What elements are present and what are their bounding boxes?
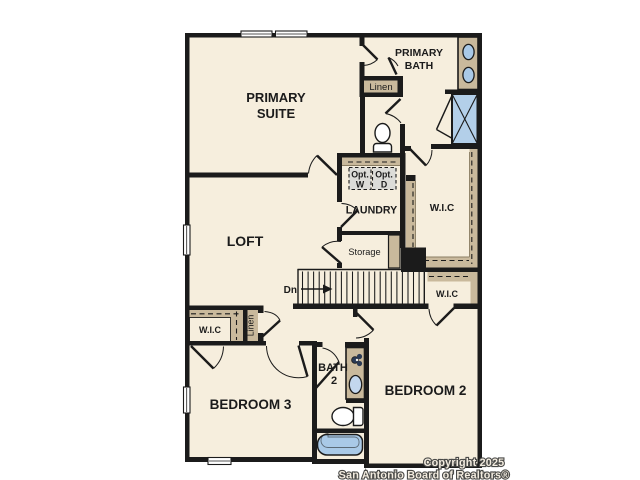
svg-text:2: 2 bbox=[331, 375, 337, 387]
svg-text:Linen: Linen bbox=[369, 82, 392, 93]
svg-text:Opt.: Opt. bbox=[375, 170, 393, 180]
svg-text:W.I.C: W.I.C bbox=[430, 203, 454, 214]
svg-text:LAUNDRY: LAUNDRY bbox=[346, 205, 397, 217]
svg-text:BEDROOM 3: BEDROOM 3 bbox=[210, 397, 292, 412]
svg-text:W.I.C: W.I.C bbox=[436, 289, 458, 299]
svg-text:PRIMARY: PRIMARY bbox=[395, 47, 443, 59]
svg-text:D: D bbox=[381, 180, 387, 190]
svg-text:Linen: Linen bbox=[246, 315, 256, 337]
svg-text:Opt.: Opt. bbox=[351, 170, 369, 180]
svg-text:Dn: Dn bbox=[284, 285, 297, 296]
svg-text:LOFT: LOFT bbox=[227, 233, 264, 249]
svg-text:W: W bbox=[356, 180, 365, 190]
svg-text:PRIMARY: PRIMARY bbox=[246, 90, 306, 105]
svg-text:BATH: BATH bbox=[318, 362, 348, 374]
svg-text:W.I.C: W.I.C bbox=[199, 325, 221, 335]
svg-text:SUITE: SUITE bbox=[257, 106, 296, 121]
svg-text:San Antonio Board of Realtors®: San Antonio Board of Realtors® bbox=[339, 470, 510, 480]
svg-text:Storage: Storage bbox=[348, 247, 380, 257]
svg-text:BATH: BATH bbox=[405, 60, 433, 72]
svg-text:BEDROOM 2: BEDROOM 2 bbox=[385, 383, 467, 398]
svg-text:Copyright 2025: Copyright 2025 bbox=[424, 457, 505, 469]
